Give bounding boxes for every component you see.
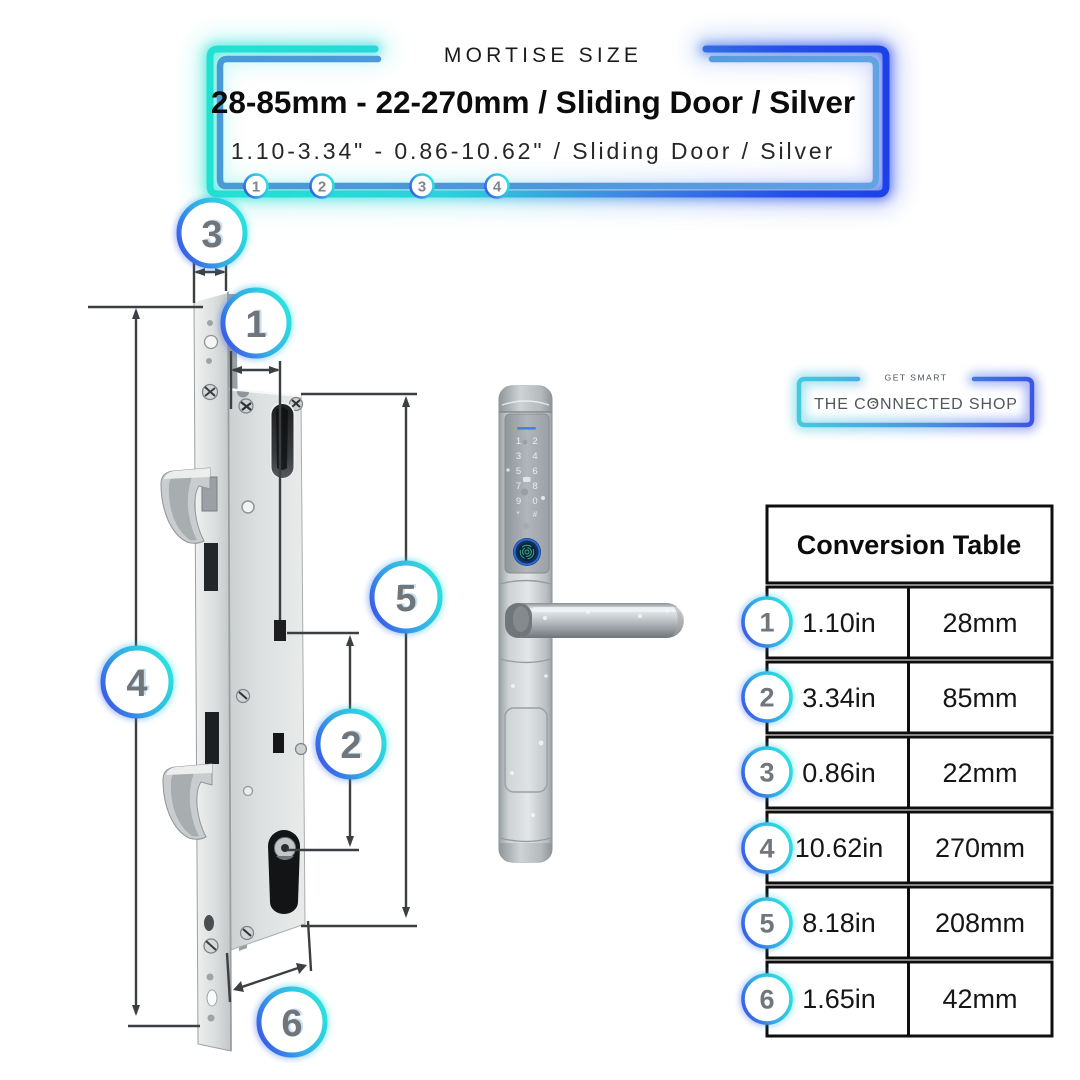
svg-text:1.10in: 1.10in — [802, 608, 876, 638]
svg-text:28mm: 28mm — [942, 608, 1017, 638]
svg-text:9: 9 — [516, 496, 521, 507]
svg-text:#: # — [533, 510, 538, 519]
svg-text:4: 4 — [759, 834, 774, 864]
svg-text:*: * — [516, 510, 519, 519]
svg-text:1: 1 — [252, 179, 260, 196]
svg-text:0: 0 — [532, 496, 537, 507]
svg-text:1.65in: 1.65in — [802, 984, 876, 1014]
svg-text:THE CONNECTED SHOP: THE CONNECTED SHOP — [814, 396, 1018, 413]
svg-text:4: 4 — [126, 663, 147, 705]
svg-text:2: 2 — [340, 725, 361, 767]
svg-text:Conversion Table: Conversion Table — [797, 530, 1022, 560]
svg-text:3: 3 — [201, 214, 222, 256]
svg-text:0.86in: 0.86in — [802, 758, 876, 788]
svg-text:2: 2 — [532, 436, 537, 447]
svg-text:7: 7 — [516, 481, 521, 492]
svg-text:1: 1 — [759, 608, 774, 638]
svg-text:5: 5 — [516, 466, 521, 477]
svg-text:8: 8 — [532, 481, 537, 492]
svg-text:22mm: 22mm — [942, 758, 1017, 788]
svg-text:GET SMART: GET SMART — [885, 373, 948, 383]
svg-text:2: 2 — [759, 683, 774, 713]
svg-text:1.10-3.34" - 0.86-10.62" / Sli: 1.10-3.34" - 0.86-10.62" / Sliding Door … — [231, 138, 835, 164]
svg-text:85mm: 85mm — [942, 683, 1017, 713]
svg-text:6: 6 — [532, 466, 537, 477]
svg-text:4: 4 — [532, 451, 537, 462]
svg-text:5: 5 — [759, 909, 774, 939]
svg-text:28-85mm - 22-270mm / Sliding D: 28-85mm - 22-270mm / Sliding Door / Silv… — [211, 84, 855, 120]
svg-text:270mm: 270mm — [935, 833, 1025, 863]
svg-text:8.18in: 8.18in — [802, 908, 876, 938]
svg-text:10.62in: 10.62in — [795, 833, 884, 863]
svg-text:6: 6 — [759, 985, 774, 1015]
svg-text:3: 3 — [516, 451, 521, 462]
svg-text:6: 6 — [281, 1003, 302, 1045]
svg-text:1: 1 — [245, 304, 266, 346]
svg-text:3: 3 — [759, 758, 774, 788]
svg-text:2: 2 — [318, 179, 326, 196]
svg-text:5: 5 — [395, 578, 416, 620]
svg-text:4: 4 — [493, 179, 502, 196]
svg-text:42mm: 42mm — [942, 984, 1017, 1014]
svg-text:3: 3 — [418, 179, 426, 196]
svg-text:3.34in: 3.34in — [802, 683, 876, 713]
svg-text:208mm: 208mm — [935, 908, 1025, 938]
svg-text:1: 1 — [516, 436, 521, 447]
svg-text:MORTISE SIZE: MORTISE SIZE — [444, 44, 642, 67]
